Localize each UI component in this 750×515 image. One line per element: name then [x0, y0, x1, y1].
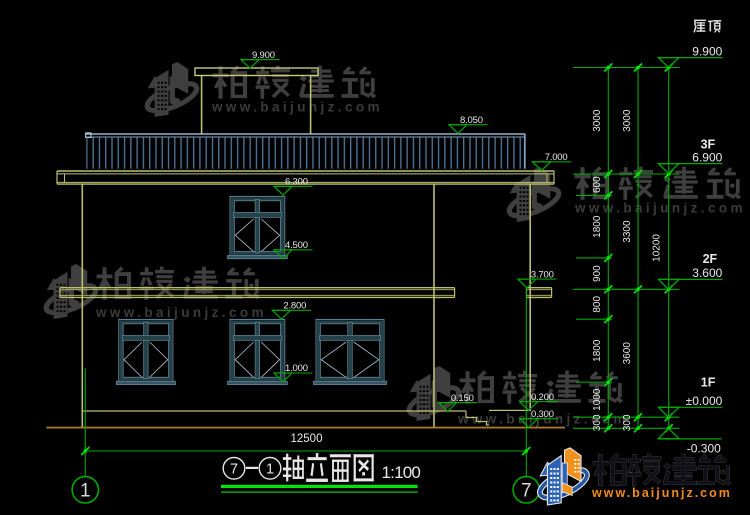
svg-text:300: 300	[592, 414, 603, 431]
svg-text:3300: 3300	[622, 220, 633, 243]
svg-text:10200: 10200	[652, 234, 663, 262]
svg-text:0.200: 0.200	[531, 392, 554, 403]
svg-text:www.baijunjz.com: www.baijunjz.com	[95, 305, 267, 320]
svg-text:9.900: 9.900	[252, 50, 275, 61]
svg-text:±0.000: ±0.000	[686, 394, 723, 408]
svg-text:-0.300: -0.300	[687, 442, 721, 456]
svg-text:2.800: 2.800	[283, 301, 306, 312]
svg-text:www.baijunjz.com: www.baijunjz.com	[591, 486, 732, 500]
svg-text:2F: 2F	[703, 252, 718, 266]
svg-text:www.baijunjz.com: www.baijunjz.com	[211, 100, 383, 115]
svg-text:9.900: 9.900	[692, 44, 722, 58]
svg-text:6.300: 6.300	[285, 177, 308, 188]
svg-text:3000: 3000	[622, 109, 633, 132]
svg-text:3.600: 3.600	[692, 266, 722, 280]
svg-text:300: 300	[622, 414, 633, 431]
svg-text:4.500: 4.500	[285, 240, 308, 251]
svg-text:1.000: 1.000	[285, 363, 308, 374]
svg-text:1800: 1800	[592, 339, 603, 362]
svg-text:3.700: 3.700	[531, 269, 554, 280]
svg-text:0.300: 0.300	[531, 409, 554, 420]
svg-text:1F: 1F	[701, 376, 716, 390]
svg-text:3000: 3000	[592, 109, 603, 132]
svg-text:6.900: 6.900	[692, 150, 722, 164]
svg-text:900: 900	[592, 265, 603, 282]
svg-text:600: 600	[592, 176, 603, 193]
svg-text:7.000: 7.000	[545, 152, 568, 163]
svg-text:1: 1	[266, 462, 274, 478]
svg-text:1: 1	[80, 481, 91, 502]
svg-text:1:100: 1:100	[382, 463, 421, 482]
svg-text:7: 7	[521, 481, 532, 502]
svg-text:7: 7	[230, 462, 238, 478]
svg-text:12500: 12500	[291, 433, 323, 445]
svg-text:0.150: 0.150	[451, 393, 474, 404]
svg-text:800: 800	[592, 296, 603, 313]
svg-text:1800: 1800	[592, 215, 603, 238]
svg-text:8.050: 8.050	[460, 115, 483, 126]
svg-text:www.baijunjz.com: www.baijunjz.com	[574, 201, 746, 216]
svg-text:3F: 3F	[701, 137, 716, 151]
svg-text:3600: 3600	[622, 342, 633, 365]
svg-text:1000: 1000	[592, 388, 603, 411]
